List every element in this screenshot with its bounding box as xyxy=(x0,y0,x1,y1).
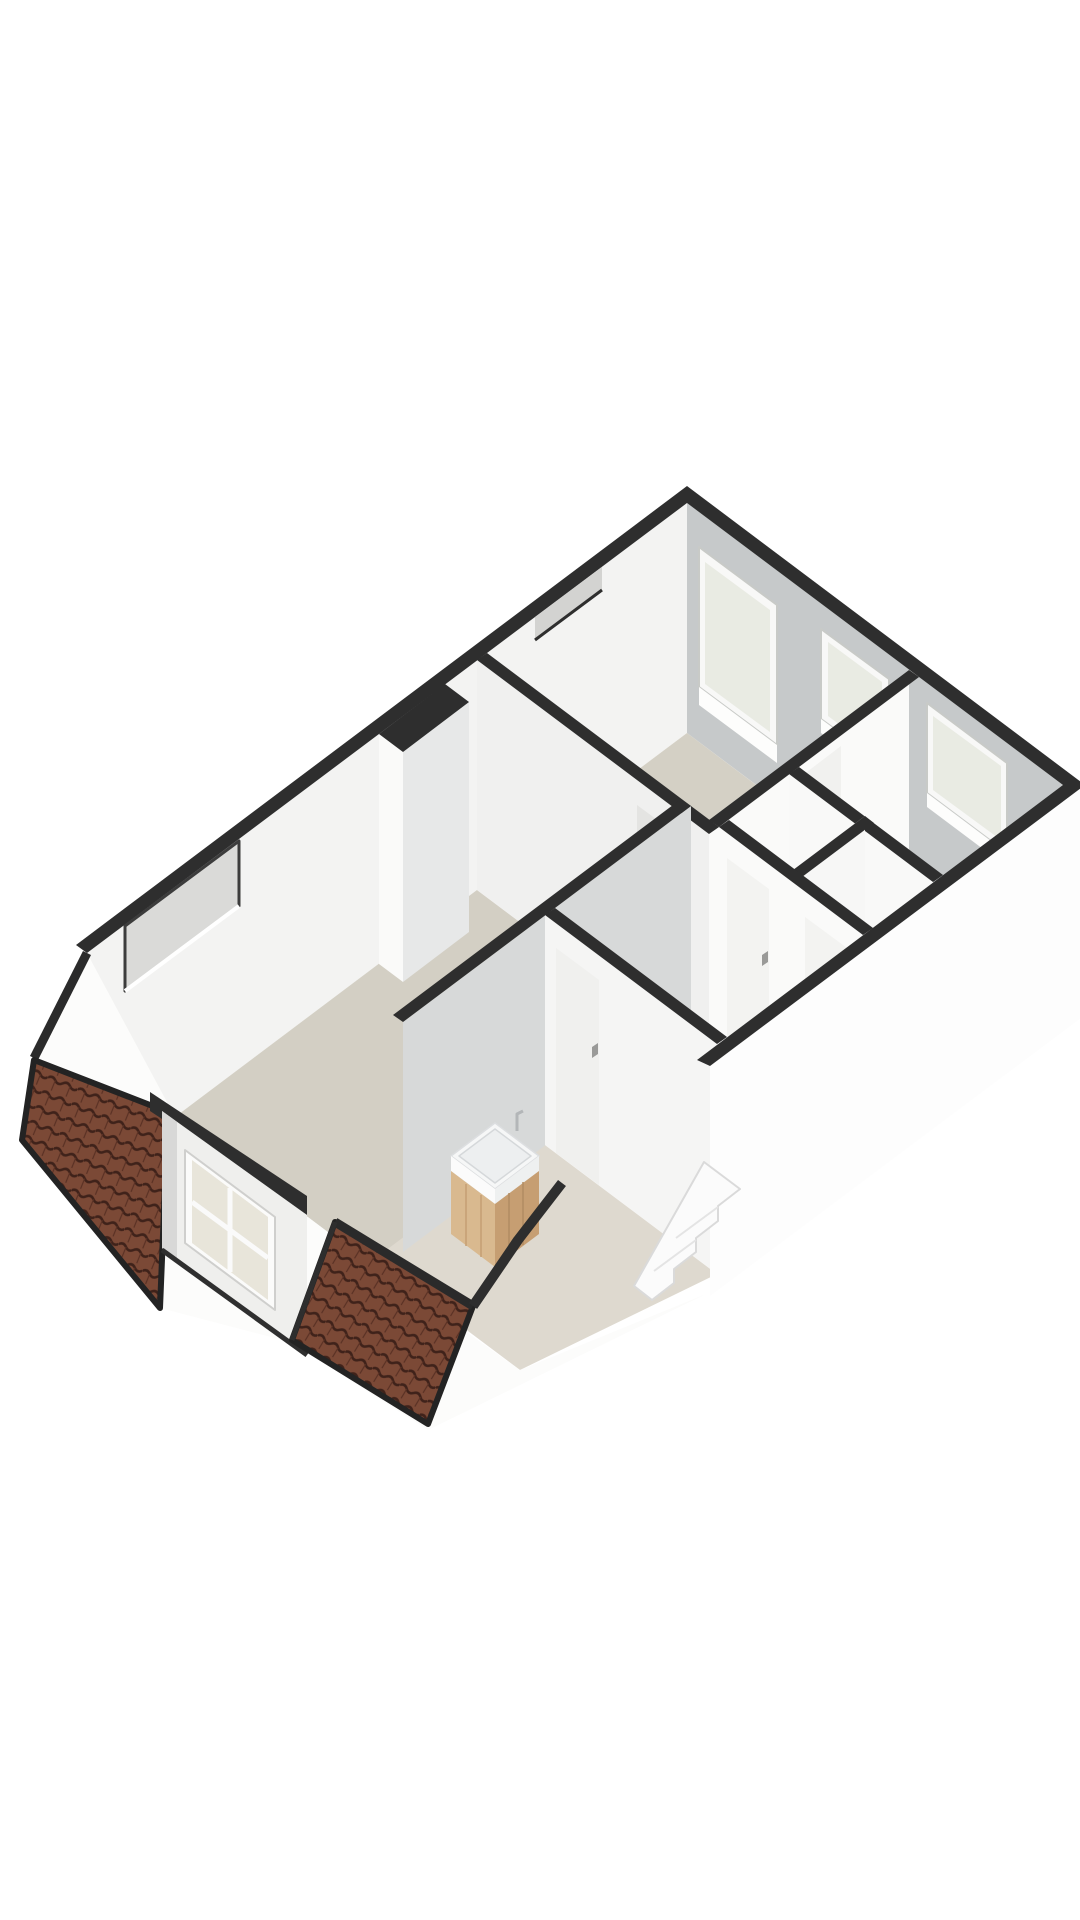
door-bathroom xyxy=(556,948,599,1185)
chimney-breast-front-face xyxy=(379,734,403,982)
page-background xyxy=(0,0,1080,1920)
floor-plan-3d-render xyxy=(0,0,1080,1920)
dormer-jamb-left xyxy=(162,1111,177,1259)
